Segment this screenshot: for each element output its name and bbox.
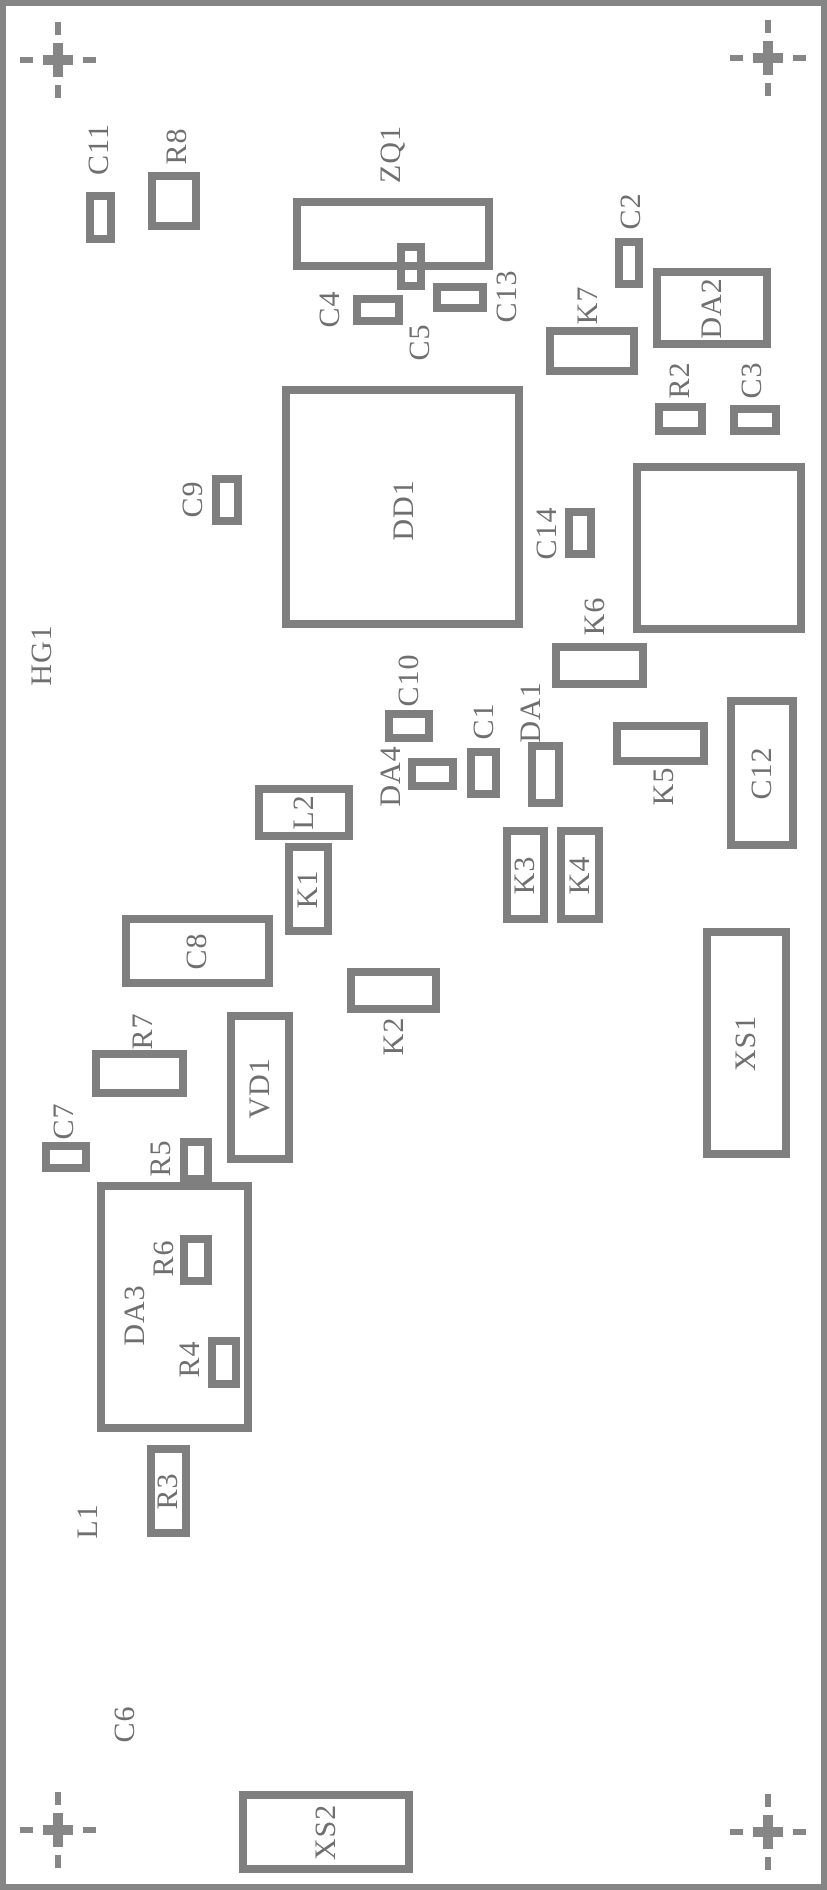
ref-label-C8: C8 bbox=[182, 932, 212, 969]
component-C11 bbox=[86, 192, 115, 243]
ref-label-R2: R2 bbox=[665, 361, 695, 398]
ref-label-C1: C1 bbox=[469, 702, 499, 739]
component-R6 bbox=[180, 1235, 212, 1285]
fiducial-bottom-right-icon bbox=[730, 1794, 806, 1870]
fiducial-bar bbox=[83, 1827, 96, 1833]
fiducial-top-left-icon bbox=[20, 22, 96, 98]
ref-label-R4: R4 bbox=[175, 1340, 205, 1377]
fiducial-bar bbox=[763, 1815, 773, 1849]
component-R5 bbox=[180, 1138, 212, 1183]
fiducial-bar bbox=[55, 85, 61, 98]
fiducial-bar bbox=[53, 43, 63, 77]
fiducial-bar bbox=[730, 55, 743, 61]
ref-label-C2: C2 bbox=[616, 192, 646, 229]
text-label-C6: C6 bbox=[110, 1705, 140, 1742]
fiducial-top-right-icon bbox=[730, 20, 806, 96]
component-C5 bbox=[397, 243, 425, 290]
ref-label-DA2: DA2 bbox=[697, 277, 727, 338]
text-label-HG1: HG1 bbox=[27, 624, 57, 685]
ref-label-R8: R8 bbox=[162, 127, 192, 164]
component-C14 bbox=[565, 508, 595, 558]
fiducial-bar bbox=[793, 1829, 806, 1835]
fiducial-bar bbox=[20, 1827, 33, 1833]
component-R4 bbox=[208, 1337, 240, 1388]
ref-label-R6: R6 bbox=[149, 1239, 179, 1276]
fiducial-bar bbox=[55, 22, 61, 35]
fiducial-bar bbox=[765, 83, 771, 96]
ref-label-ZQ1: ZQ1 bbox=[376, 125, 406, 183]
fiducial-bar bbox=[20, 57, 33, 63]
fiducial-bar bbox=[765, 1794, 771, 1807]
component-C3 bbox=[730, 405, 780, 435]
ref-label-R7: R7 bbox=[128, 1012, 158, 1049]
ref-label-DD1: DD1 bbox=[389, 479, 419, 540]
ref-label-XS2: XS2 bbox=[311, 1804, 341, 1860]
ref-label-C11: C11 bbox=[84, 123, 114, 175]
fiducial-bar bbox=[53, 1813, 63, 1847]
component-R7 bbox=[92, 1050, 187, 1097]
fiducial-bar bbox=[793, 55, 806, 61]
ref-label-C13: C13 bbox=[492, 269, 522, 322]
ref-label-C14: C14 bbox=[532, 506, 562, 559]
ref-label-K2: K2 bbox=[379, 1017, 409, 1056]
component-K6 bbox=[552, 643, 647, 688]
component-C4 bbox=[353, 295, 403, 325]
pcb-assembly-drawing: C11R8ZQ1C5C4C13C2DA2K7R2C3DD1C9C14K6C10D… bbox=[0, 0, 827, 1890]
component-C13 bbox=[433, 283, 487, 312]
component-ZQ1 bbox=[293, 198, 493, 270]
ref-label-K1: K1 bbox=[293, 870, 323, 909]
ref-label-K6: K6 bbox=[580, 597, 610, 636]
ref-label-K4: K4 bbox=[565, 856, 595, 895]
component-C1 bbox=[467, 748, 500, 798]
component-R2 bbox=[655, 403, 706, 435]
component-DA4 bbox=[408, 758, 457, 790]
fiducial-bar bbox=[765, 20, 771, 33]
component-DA1 bbox=[528, 742, 563, 807]
ref-label-C5: C5 bbox=[405, 323, 435, 360]
component-K2 bbox=[347, 968, 440, 1013]
ref-label-L2: L2 bbox=[289, 794, 319, 829]
ref-label-DA4: DA4 bbox=[376, 745, 406, 806]
component-K7 bbox=[546, 327, 638, 375]
ref-label-R3: R3 bbox=[153, 1472, 183, 1509]
component-R8 bbox=[148, 172, 200, 230]
fiducial-bar bbox=[55, 1855, 61, 1868]
text-label-L1: L1 bbox=[73, 1503, 103, 1538]
ref-label-C7: C7 bbox=[49, 1102, 79, 1139]
component-K5 bbox=[613, 722, 708, 765]
component-C2 bbox=[615, 238, 643, 288]
fiducial-bar bbox=[55, 1792, 61, 1805]
fiducial-bottom-left-icon bbox=[20, 1792, 96, 1868]
fiducial-bar bbox=[765, 1857, 771, 1870]
ref-label-C10: C10 bbox=[394, 653, 424, 706]
ref-label-C12: C12 bbox=[747, 746, 777, 799]
ref-label-C9: C9 bbox=[178, 480, 208, 517]
component-C7 bbox=[42, 1142, 90, 1172]
ref-label-K5: K5 bbox=[649, 767, 679, 806]
ref-label-DA3: DA3 bbox=[120, 1284, 150, 1345]
fiducial-bar bbox=[763, 41, 773, 75]
ref-label-R5: R5 bbox=[146, 1139, 176, 1176]
ref-label-C4: C4 bbox=[315, 290, 345, 327]
component-unlabeled-square bbox=[633, 463, 805, 633]
ref-label-K3: K3 bbox=[510, 856, 540, 895]
ref-label-VD1: VD1 bbox=[245, 1057, 275, 1118]
component-C9 bbox=[212, 475, 242, 525]
ref-label-C3: C3 bbox=[737, 361, 767, 398]
ref-label-DA1: DA1 bbox=[516, 681, 546, 742]
fiducial-bar bbox=[730, 1829, 743, 1835]
component-C10 bbox=[385, 710, 433, 742]
fiducial-bar bbox=[83, 57, 96, 63]
ref-label-K7: K7 bbox=[573, 286, 603, 325]
ref-label-XS1: XS1 bbox=[731, 1015, 761, 1071]
